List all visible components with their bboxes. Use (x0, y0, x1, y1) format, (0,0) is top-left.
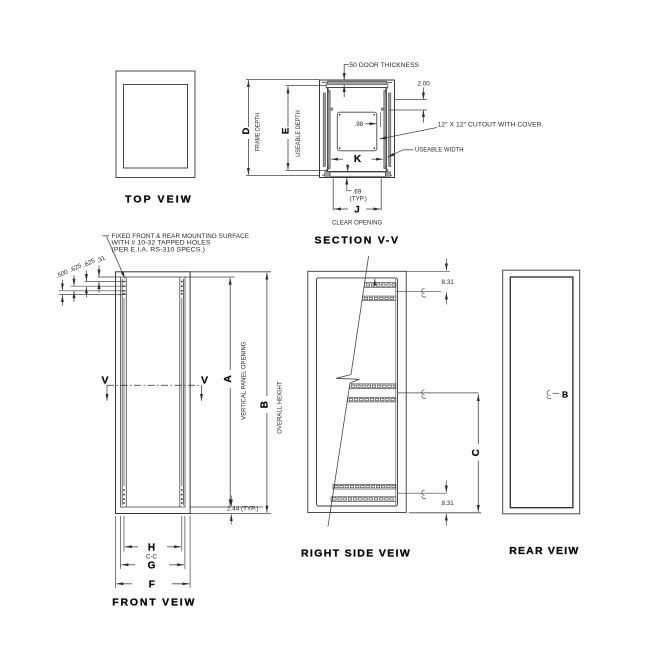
svg-text:C-C: C-C (146, 554, 158, 561)
svg-text:USEABLE WIDTH: USEABLE WIDTH (415, 147, 464, 154)
svg-text:2.44 (TYP.): 2.44 (TYP.) (227, 506, 258, 513)
svg-text:FRONT VEIW: FRONT VEIW (112, 596, 196, 608)
svg-text:C: C (471, 449, 482, 456)
svg-text:(TYP.): (TYP.) (350, 196, 367, 203)
svg-text:.625: .625 (69, 262, 84, 274)
svg-text:VERTICAL PANEL OPENING: VERTICAL PANEL OPENING (241, 342, 248, 420)
svg-text:V: V (201, 375, 208, 387)
svg-text:RIGHT SIDE VEIW: RIGHT SIDE VEIW (301, 547, 411, 559)
svg-text:.69: .69 (353, 189, 362, 196)
svg-text:V: V (101, 375, 108, 387)
svg-text:F: F (149, 580, 155, 591)
svg-text:SECTION V-V: SECTION V-V (315, 235, 400, 247)
svg-text:G: G (148, 561, 156, 572)
svg-text:FRAME DEPTH: FRAME DEPTH (255, 113, 262, 152)
svg-text:A: A (222, 375, 234, 383)
svg-text:.31: .31 (96, 254, 107, 264)
svg-text:8.31: 8.31 (442, 500, 455, 507)
svg-text:.50 DOOR THICKNESS: .50 DOOR THICKNESS (348, 62, 420, 69)
svg-text:(PER E.I.A. RS-310 SPECS.): (PER E.I.A. RS-310 SPECS.) (112, 246, 206, 253)
svg-text:CLEAR OPENING: CLEAR OPENING (332, 220, 382, 227)
svg-text:E: E (281, 128, 292, 134)
svg-text:REAR VEIW: REAR VEIW (509, 545, 579, 557)
svg-text:12″ X 12″ CUTOUT WITH COVER.: 12″ X 12″ CUTOUT WITH COVER. (438, 122, 544, 129)
svg-text:B: B (260, 401, 271, 408)
svg-text:2.00: 2.00 (418, 81, 431, 88)
svg-text:B: B (562, 390, 568, 400)
svg-text:.98: .98 (355, 121, 364, 128)
svg-text:TOP VEIW: TOP VEIW (125, 194, 193, 206)
svg-text:J: J (354, 205, 359, 216)
svg-text:H: H (148, 543, 155, 554)
svg-text:.625: .625 (82, 257, 97, 269)
svg-text:K: K (354, 154, 362, 165)
svg-text:8.31: 8.31 (442, 279, 455, 286)
svg-text:D: D (241, 127, 252, 134)
svg-text:.500: .500 (55, 268, 70, 280)
svg-text:OVERALL HEIGHT: OVERALL HEIGHT (277, 381, 284, 434)
svg-text:USEABLE DEPTH: USEABLE DEPTH (295, 110, 302, 157)
